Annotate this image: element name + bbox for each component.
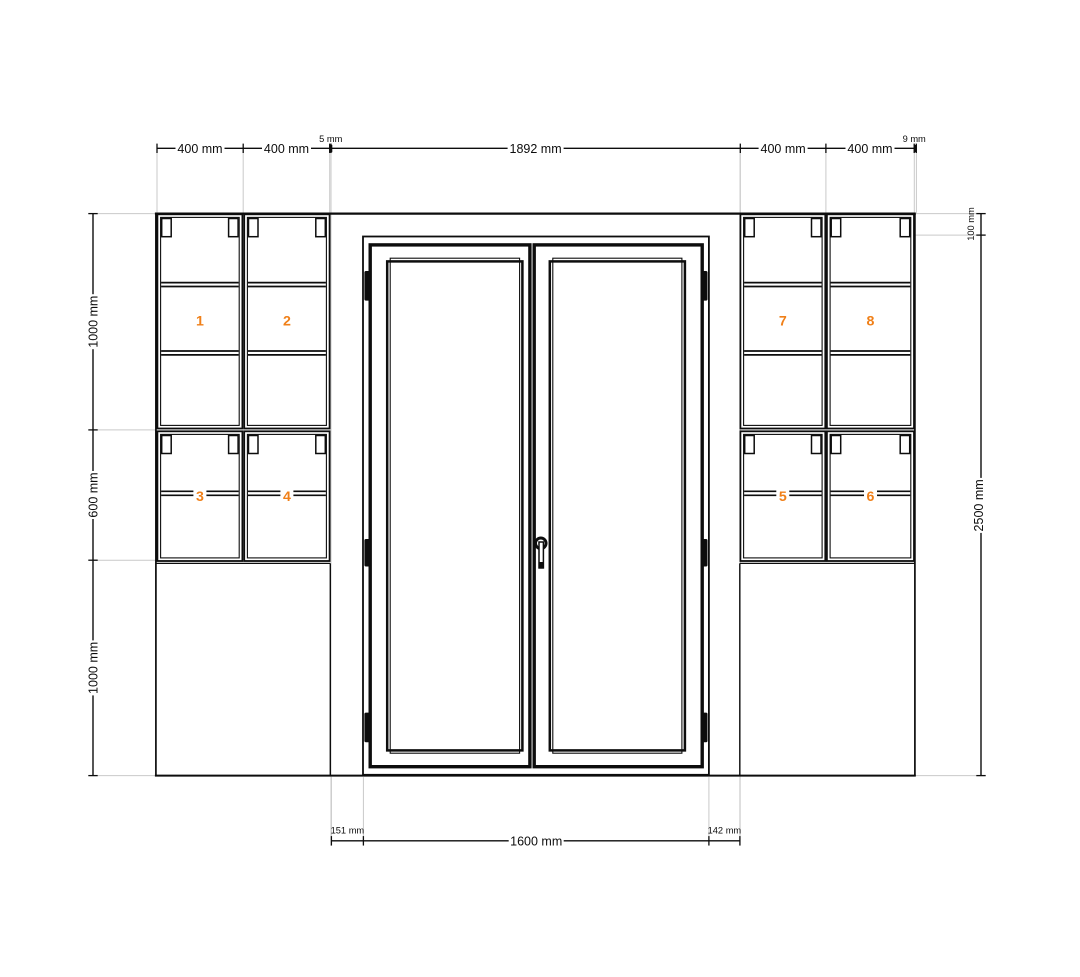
svg-text:2: 2: [283, 314, 291, 330]
svg-text:1600 mm: 1600 mm: [510, 834, 562, 848]
svg-text:2500 mm: 2500 mm: [972, 479, 986, 531]
svg-text:1892 mm: 1892 mm: [510, 142, 562, 156]
svg-text:7: 7: [779, 314, 787, 330]
svg-text:3: 3: [196, 489, 204, 505]
svg-text:5: 5: [779, 489, 787, 505]
svg-text:1000 mm: 1000 mm: [87, 642, 101, 694]
svg-text:9 mm: 9 mm: [903, 134, 926, 144]
svg-text:151 mm: 151 mm: [331, 826, 365, 836]
svg-text:600 mm: 600 mm: [87, 472, 101, 517]
svg-text:4: 4: [283, 489, 291, 505]
svg-text:142 mm: 142 mm: [708, 826, 742, 836]
svg-text:400 mm: 400 mm: [761, 142, 806, 156]
svg-text:1: 1: [196, 314, 204, 330]
svg-text:100 mm: 100 mm: [966, 207, 976, 241]
svg-text:5 mm: 5 mm: [319, 134, 342, 144]
svg-text:8: 8: [867, 314, 875, 330]
svg-text:6: 6: [867, 489, 875, 505]
svg-text:400 mm: 400 mm: [847, 142, 892, 156]
svg-text:400 mm: 400 mm: [264, 142, 309, 156]
svg-text:1000 mm: 1000 mm: [87, 296, 101, 348]
svg-text:400 mm: 400 mm: [177, 142, 222, 156]
